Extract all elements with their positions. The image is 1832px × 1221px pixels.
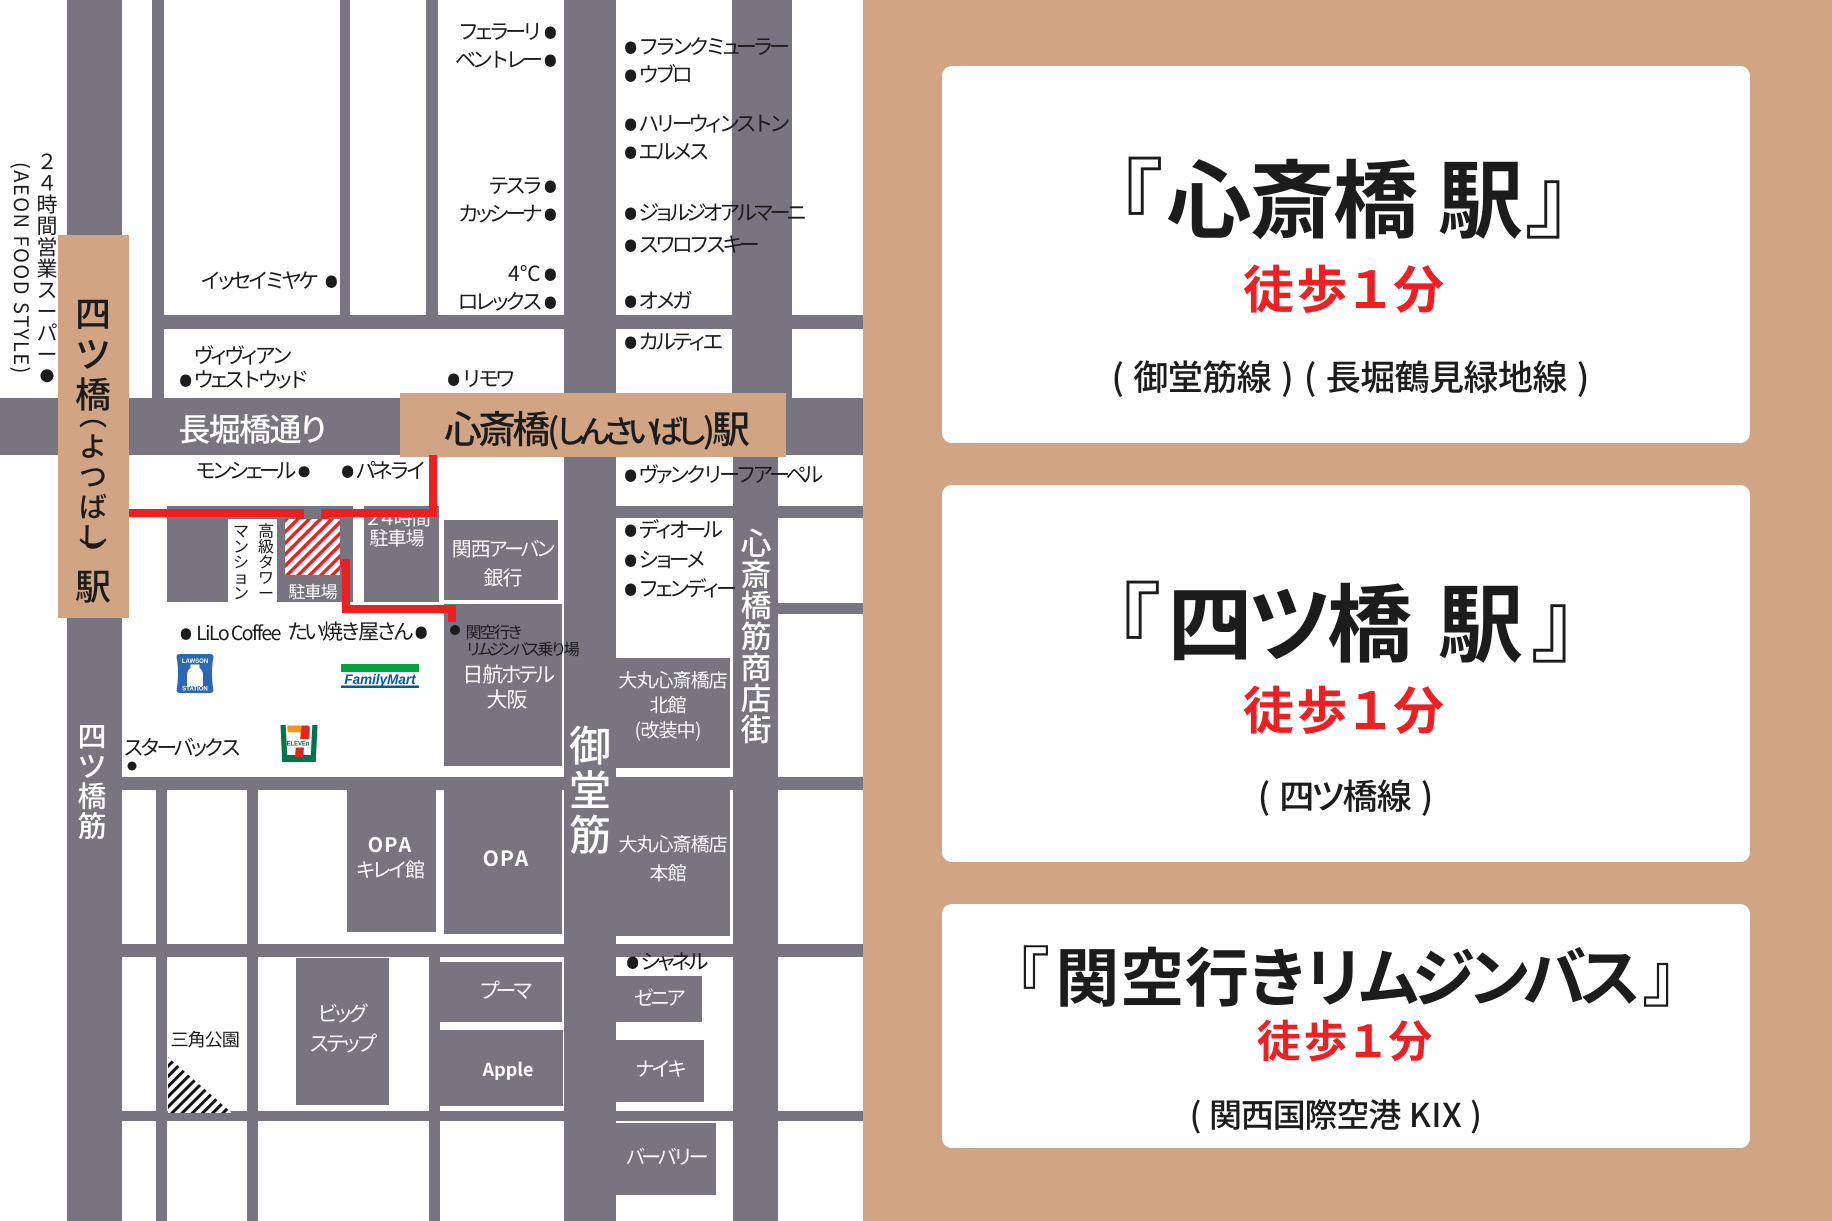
- svg-text:STATION: STATION: [182, 687, 207, 693]
- svg-text:ELEVEn: ELEVEn: [287, 742, 310, 748]
- svg-text:FamilyMart: FamilyMart: [344, 672, 416, 687]
- svg-text:LAWSON: LAWSON: [182, 659, 208, 665]
